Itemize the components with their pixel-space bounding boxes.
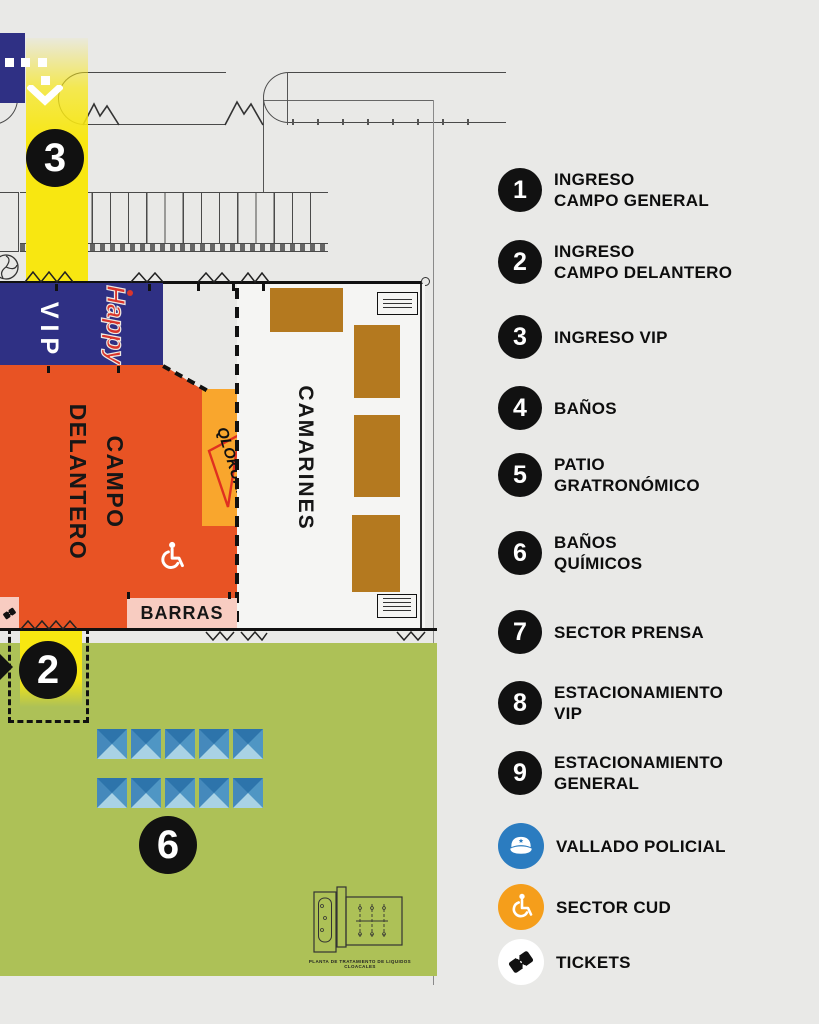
campo-label-line2: DELANTERO bbox=[59, 404, 96, 561]
camarines-label-text: CAMARINES bbox=[293, 385, 317, 530]
happy-brand-logo: Happy bbox=[98, 288, 134, 362]
venue-map-poster: 3 VIP Happy CAMPO DELANTERO bbox=[0, 0, 819, 1024]
camarines-module bbox=[352, 515, 400, 592]
legend-label: VIP bbox=[554, 703, 723, 724]
legend-marker-5: 5 bbox=[498, 453, 542, 497]
entry-arrow-dash bbox=[5, 58, 14, 67]
camarines-module bbox=[354, 415, 400, 497]
wall-zigzag bbox=[240, 631, 268, 641]
legend-label: CAMPO GENERAL bbox=[554, 190, 709, 211]
legend-item-6: 6 BAÑOSQUÍMICOS bbox=[498, 531, 642, 575]
ticket-icon bbox=[498, 939, 544, 985]
happy-logo-text: Happy bbox=[101, 285, 132, 364]
banos-quimicos-unit bbox=[233, 729, 263, 759]
campo-delantero-label: CAMPO DELANTERO bbox=[59, 392, 133, 572]
legend-label: PATIO bbox=[554, 454, 700, 475]
wall-zigzag bbox=[197, 272, 231, 283]
legend-number: 8 bbox=[513, 689, 527, 718]
map-marker-ingreso-vip: 3 bbox=[26, 129, 84, 187]
legend-item-9: 9 ESTACIONAMIENTOGENERAL bbox=[498, 751, 723, 795]
legend-item-2: 2 INGRESOCAMPO DELANTERO bbox=[498, 240, 732, 284]
map-marker-banos-quimicos: 6 bbox=[139, 816, 197, 874]
wheelchair-icon bbox=[155, 535, 187, 579]
entry-arrow-dash bbox=[21, 58, 30, 67]
banos-quimicos-unit bbox=[165, 778, 195, 808]
legend-number: 7 bbox=[513, 618, 527, 647]
camarines-module bbox=[354, 325, 400, 398]
legend-label: SECTOR PRENSA bbox=[554, 622, 704, 643]
wall-zigzag bbox=[130, 272, 164, 283]
happy-logo-dot bbox=[127, 290, 133, 296]
perimeter-line-top bbox=[263, 100, 433, 101]
camarines-inner-wall bbox=[420, 284, 422, 630]
banos-quimicos-unit bbox=[131, 729, 161, 759]
legend-label: TICKETS bbox=[556, 952, 631, 973]
legend-marker-1: 1 bbox=[498, 168, 542, 212]
vip-area bbox=[0, 283, 163, 365]
legend-item-3: 3 INGRESO VIP bbox=[498, 315, 668, 359]
legend-label: BAÑOS bbox=[554, 398, 617, 419]
wheelchair-icon bbox=[498, 884, 544, 930]
legend-label: GRATRONÓMICO bbox=[554, 475, 700, 496]
entry-arrow-chevron-icon bbox=[27, 85, 63, 106]
wall-zigzag bbox=[205, 631, 237, 641]
entry-arrow-dash bbox=[41, 76, 50, 85]
ticket-icon bbox=[1, 605, 18, 622]
legend-number: 2 bbox=[513, 248, 527, 277]
wall-tick bbox=[127, 592, 130, 599]
legend-number: 6 bbox=[513, 539, 527, 568]
legend-number: 1 bbox=[513, 176, 527, 205]
vip-label-text: VIP bbox=[35, 302, 64, 360]
banos-quimicos-unit bbox=[165, 729, 195, 759]
barras-area: BARRAS bbox=[127, 598, 237, 628]
legend-label: GENERAL bbox=[554, 773, 723, 794]
entry-arrow-icon bbox=[0, 654, 13, 680]
legend-marker-3: 3 bbox=[498, 315, 542, 359]
marker-number: 3 bbox=[44, 136, 66, 181]
legend-label: VALLADO POLICIAL bbox=[556, 836, 726, 857]
break-line-mark bbox=[224, 99, 264, 126]
wall-zigzag bbox=[24, 271, 80, 283]
wall-tick bbox=[55, 284, 58, 291]
legend-label: SECTOR CUD bbox=[556, 897, 671, 918]
banos-quimicos-unit bbox=[97, 729, 127, 759]
stall-end-cell bbox=[0, 192, 19, 252]
legend-item-vallado-policial: VALLADO POLICIAL bbox=[498, 823, 726, 869]
wall-zigzag bbox=[396, 631, 430, 641]
banos-quimicos-unit bbox=[199, 778, 229, 808]
legend-number: 4 bbox=[513, 394, 527, 423]
legend-label: BAÑOS bbox=[554, 532, 642, 553]
wall-tick bbox=[47, 366, 50, 373]
legend-label: INGRESO VIP bbox=[554, 327, 668, 348]
campo-label-line1: CAMPO bbox=[96, 404, 133, 561]
legend-item-4: 4 BAÑOS bbox=[498, 386, 617, 430]
map-marker-ingreso-campo-delantero: 2 bbox=[19, 641, 77, 699]
legend-marker-7: 7 bbox=[498, 610, 542, 654]
banos-quimicos-unit bbox=[233, 778, 263, 808]
legend-marker-6: 6 bbox=[498, 531, 542, 575]
legend-marker-9: 9 bbox=[498, 751, 542, 795]
banos-quimicos-unit bbox=[97, 778, 127, 808]
legend-item-1: 1 INGRESOCAMPO GENERAL bbox=[498, 168, 709, 212]
legend-label: INGRESO bbox=[554, 169, 709, 190]
legend-item-5: 5 PATIOGRATRONÓMICO bbox=[498, 453, 700, 497]
legend-number: 3 bbox=[513, 323, 527, 352]
legend-label: CAMPO DELANTERO bbox=[554, 262, 732, 283]
dashed-boundary-vertical bbox=[235, 288, 239, 628]
entry-arrow-dash bbox=[38, 58, 47, 67]
fan-symbol-icon bbox=[0, 252, 21, 282]
treatment-plant-plan bbox=[312, 886, 404, 958]
banos-quimicos-unit bbox=[131, 778, 161, 808]
barras-label-text: BARRAS bbox=[140, 603, 223, 624]
vip-area-label: VIP bbox=[34, 300, 64, 362]
camarines-module bbox=[270, 288, 343, 332]
equipment-plan-detail bbox=[377, 292, 418, 315]
legend-number: 5 bbox=[513, 461, 527, 490]
wall-tick bbox=[262, 284, 265, 291]
camarines-label: CAMARINES bbox=[292, 390, 318, 526]
wall-zigzag bbox=[240, 272, 270, 283]
marker-number: 6 bbox=[157, 823, 179, 868]
site-plan: 3 VIP Happy CAMPO DELANTERO bbox=[0, 0, 819, 1024]
legend-label: ESTACIONAMIENTO bbox=[554, 752, 723, 773]
legend-marker-2: 2 bbox=[498, 240, 542, 284]
legend-label: INGRESO bbox=[554, 241, 732, 262]
legend-label: QUÍMICOS bbox=[554, 553, 642, 574]
treatment-plant-caption: PLANTA DE TRATAMIENTO DE LIQUIDOS CLOACA… bbox=[296, 959, 424, 969]
ticket-booth bbox=[0, 597, 19, 629]
road-divider-1 bbox=[287, 72, 288, 125]
wall-tick bbox=[232, 284, 235, 291]
legend-marker-8: 8 bbox=[498, 681, 542, 725]
legend-item-tickets: TICKETS bbox=[498, 939, 631, 985]
equipment-plan-detail bbox=[377, 594, 417, 618]
road-segment-b bbox=[263, 72, 506, 123]
banos-quimicos-unit bbox=[199, 729, 229, 759]
wall-tick bbox=[117, 366, 120, 373]
legend-marker-4: 4 bbox=[498, 386, 542, 430]
legend-number: 9 bbox=[513, 759, 527, 788]
wall-tick bbox=[148, 284, 151, 291]
marker-number: 2 bbox=[37, 648, 59, 693]
legend-label: ESTACIONAMIENTO bbox=[554, 682, 723, 703]
legend-item-7: 7 SECTOR PRENSA bbox=[498, 610, 704, 654]
legend-item-8: 8 ESTACIONAMIENTOVIP bbox=[498, 681, 723, 725]
street-block bbox=[0, 33, 25, 103]
road-tick-line bbox=[292, 119, 488, 125]
legend-item-sector-cud: SECTOR CUD bbox=[498, 884, 671, 930]
wall-tick bbox=[197, 284, 200, 291]
wall-tick bbox=[228, 592, 231, 599]
police-cap-icon bbox=[498, 823, 544, 869]
